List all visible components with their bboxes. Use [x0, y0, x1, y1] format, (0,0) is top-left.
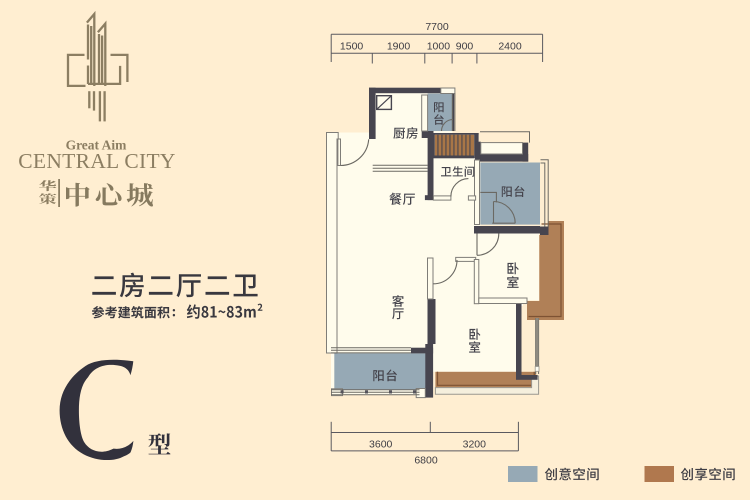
svg-text:3200: 3200	[463, 438, 487, 450]
svg-text:3600: 3600	[369, 438, 393, 450]
svg-text:2400: 2400	[498, 40, 522, 52]
svg-text:1000: 1000	[427, 40, 451, 52]
svg-text:CENTRAL CITY: CENTRAL CITY	[18, 149, 175, 173]
svg-text:6800: 6800	[414, 455, 438, 467]
svg-text:900: 900	[456, 40, 474, 52]
svg-text:1500: 1500	[340, 40, 364, 52]
svg-text:7700: 7700	[425, 21, 449, 33]
svg-text:1900: 1900	[387, 40, 411, 52]
